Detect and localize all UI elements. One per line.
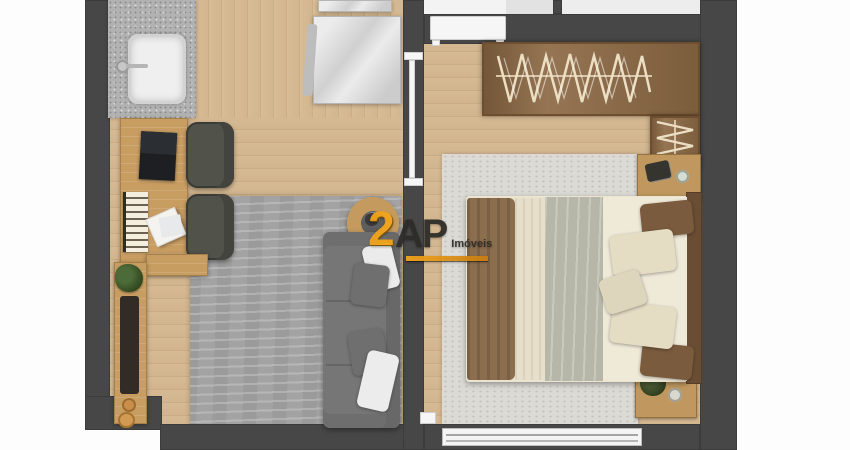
bed-blanket <box>545 197 603 381</box>
door-jamb <box>432 40 440 46</box>
door-frame-detail <box>420 412 436 424</box>
watermark-letters: AP <box>395 214 447 254</box>
plant-icon <box>115 264 143 292</box>
glass-icon <box>676 170 689 183</box>
right-wall <box>700 0 737 450</box>
office-chair <box>186 122 234 188</box>
window-glazing-line <box>446 440 638 442</box>
adjacent-wall-divider <box>553 0 562 14</box>
watermark-name: Imóveis <box>451 239 492 250</box>
midi-keyboard <box>123 192 148 252</box>
outside-corner <box>85 430 162 450</box>
decor-bowl <box>122 398 136 412</box>
sheet-fold <box>515 198 545 380</box>
bedroom-door <box>430 16 506 40</box>
office-chair <box>186 194 234 260</box>
watermark-logo: 2AP Imóveis <box>368 206 492 261</box>
cream-pillow <box>609 228 678 277</box>
floor-plan: 2AP Imóveis <box>0 0 850 450</box>
watermark-underline <box>406 256 488 261</box>
left-wall <box>85 0 110 430</box>
faucet-spout <box>126 64 148 68</box>
pocket-door-jamb <box>404 52 423 60</box>
console-runner <box>120 296 139 394</box>
window-glazing-line <box>446 434 638 436</box>
bench <box>146 254 208 276</box>
adjacent-space <box>506 0 553 14</box>
glass-icon <box>668 388 682 402</box>
dining-table-partial <box>318 0 392 12</box>
pocket-door-leaf <box>409 60 415 178</box>
decor-bowl <box>118 412 135 428</box>
hanging-clothes-icon <box>494 48 654 110</box>
watermark-number: 2 <box>368 206 395 254</box>
bedroom-window <box>442 428 642 446</box>
kitchen-sink <box>128 34 186 104</box>
laptop <box>139 131 177 181</box>
paper-sheet <box>158 214 183 238</box>
dining-table <box>313 16 401 104</box>
adjacent-space <box>424 0 506 14</box>
gray-pillow <box>350 262 391 308</box>
adjacent-space <box>562 0 700 14</box>
pocket-door-jamb <box>404 178 423 186</box>
